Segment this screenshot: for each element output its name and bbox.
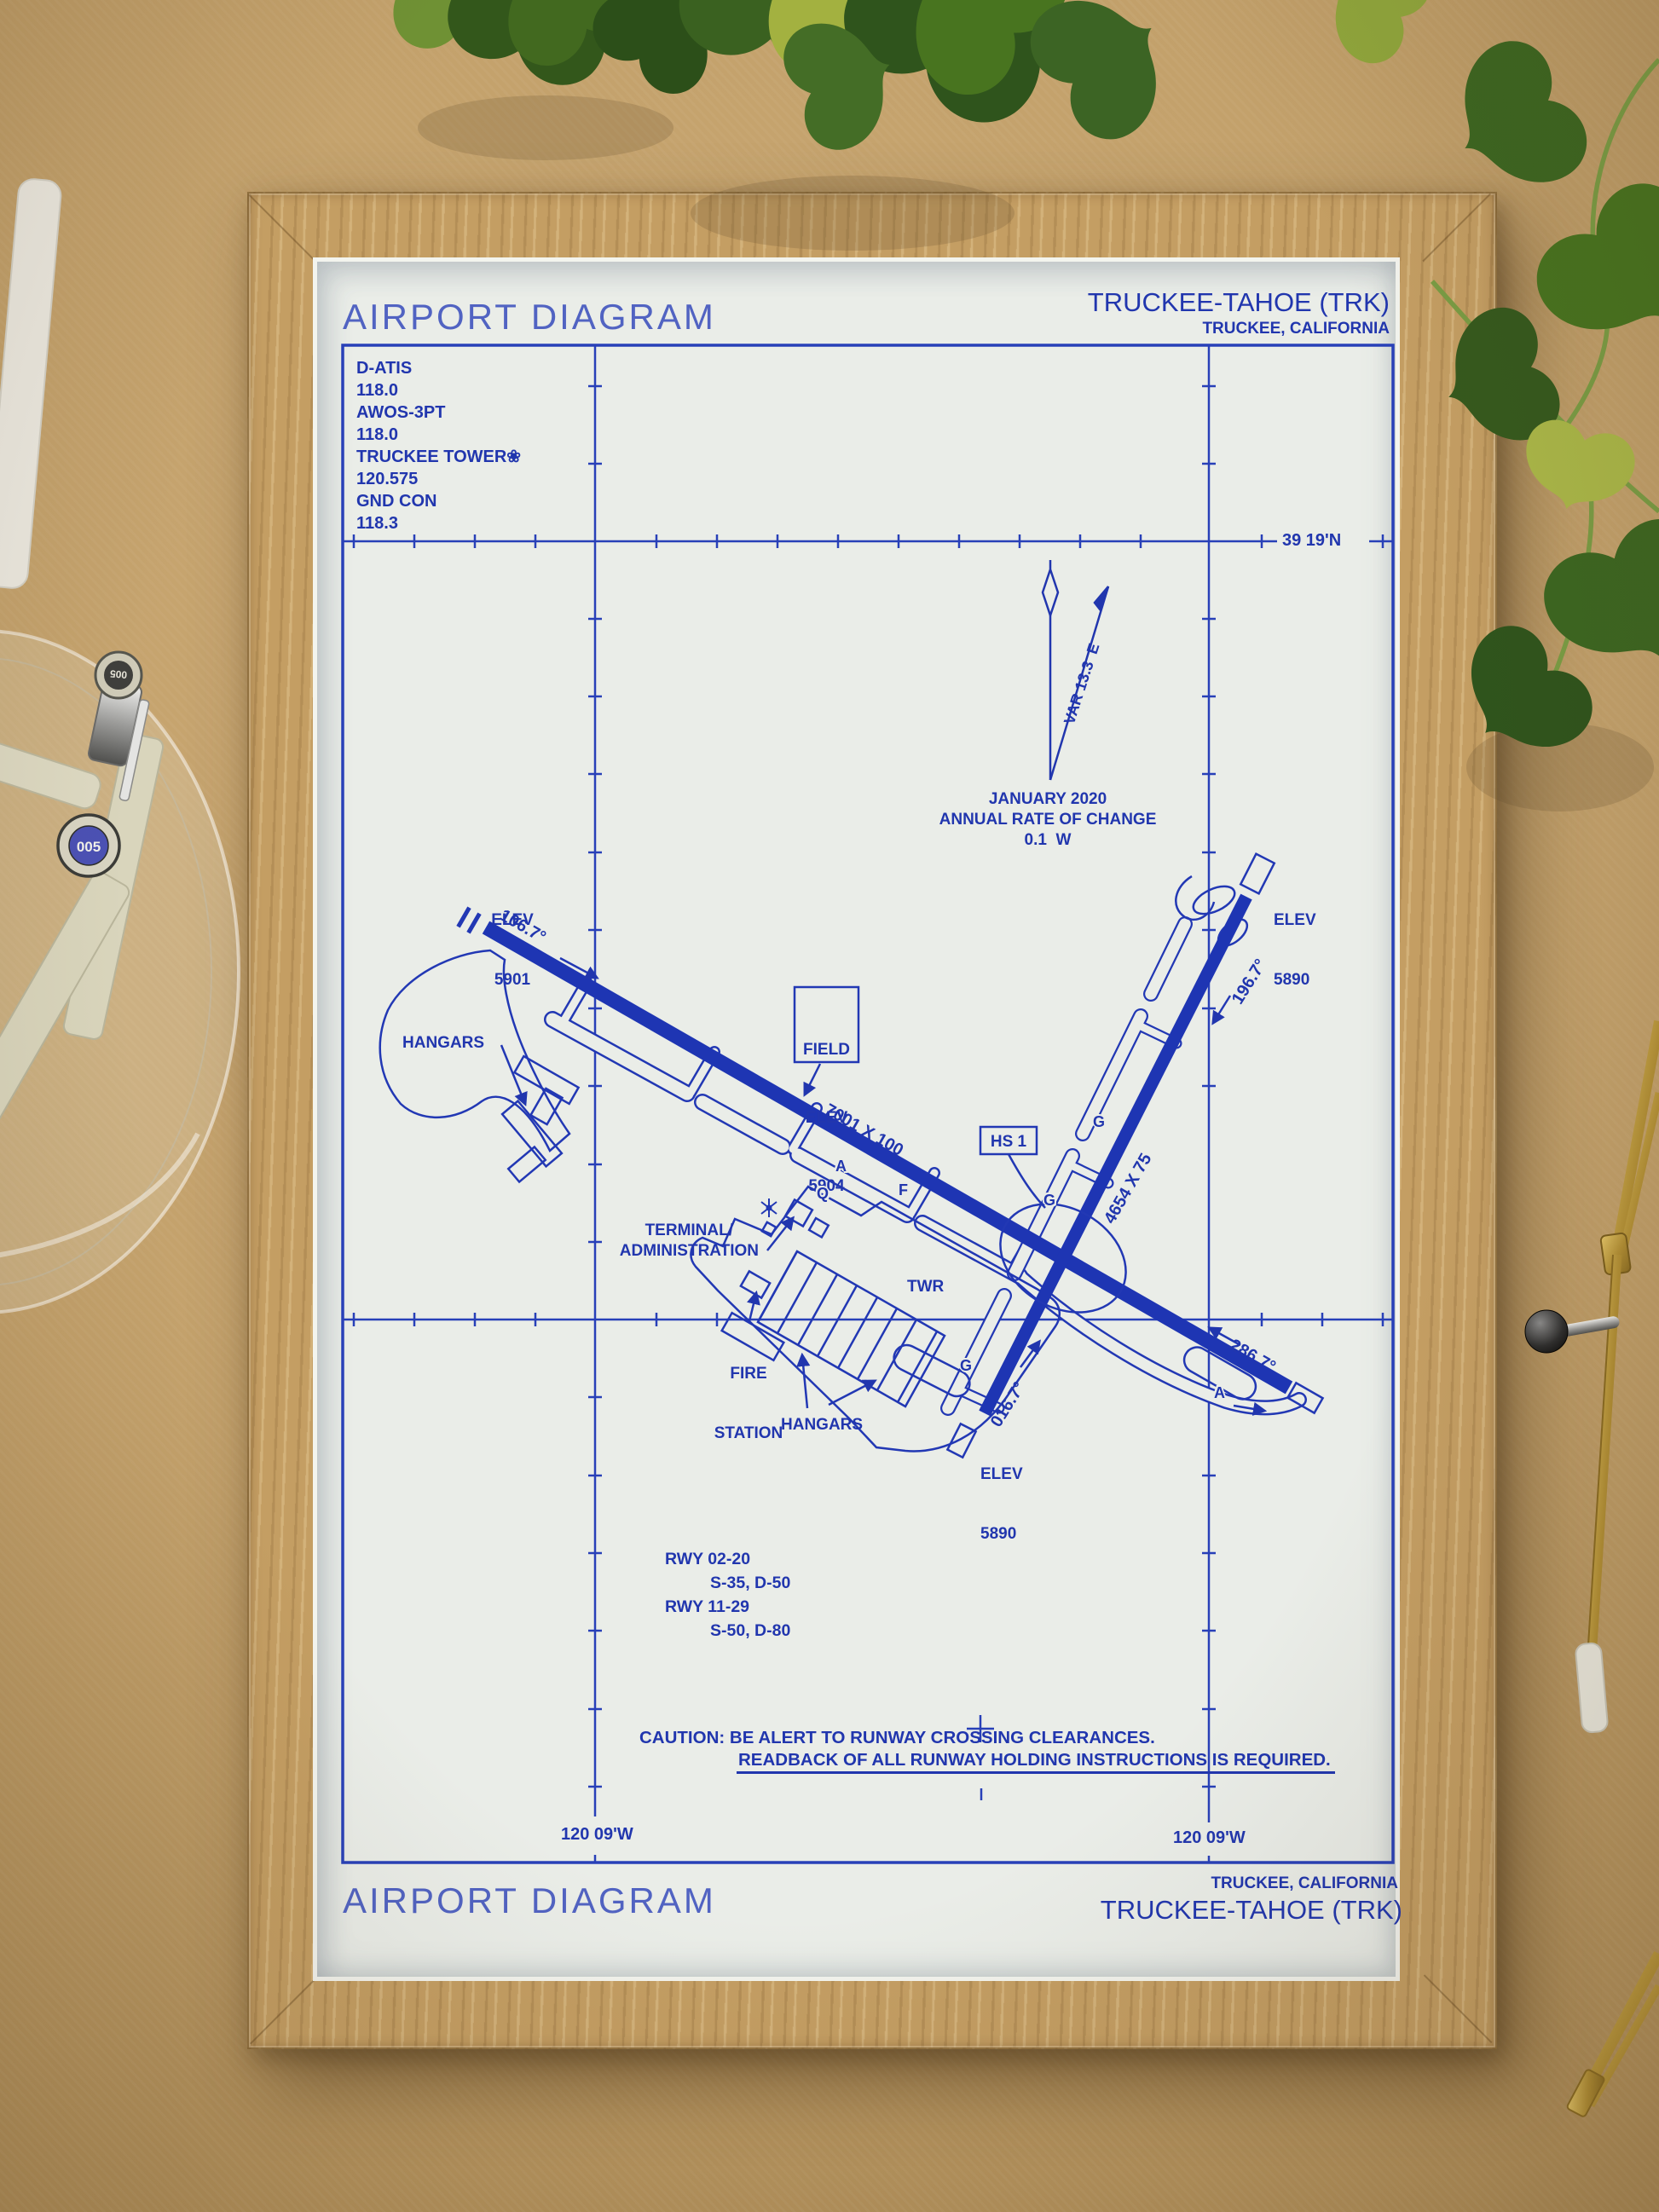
- drafting-divider: [1525, 1021, 1659, 1733]
- brass-tweezers: [1566, 1954, 1659, 2117]
- pen-cap-size-label: 005: [109, 667, 127, 681]
- plant-shadows: [418, 95, 1654, 811]
- pen-cap-size-label: 005: [77, 839, 101, 855]
- white-pen: [0, 178, 62, 590]
- divider-tip: [1575, 1643, 1609, 1733]
- adjuster-knob: [1525, 1310, 1568, 1353]
- desk-decor: 005 005: [0, 0, 1659, 2212]
- pen-glass: 005 005: [0, 178, 239, 1313]
